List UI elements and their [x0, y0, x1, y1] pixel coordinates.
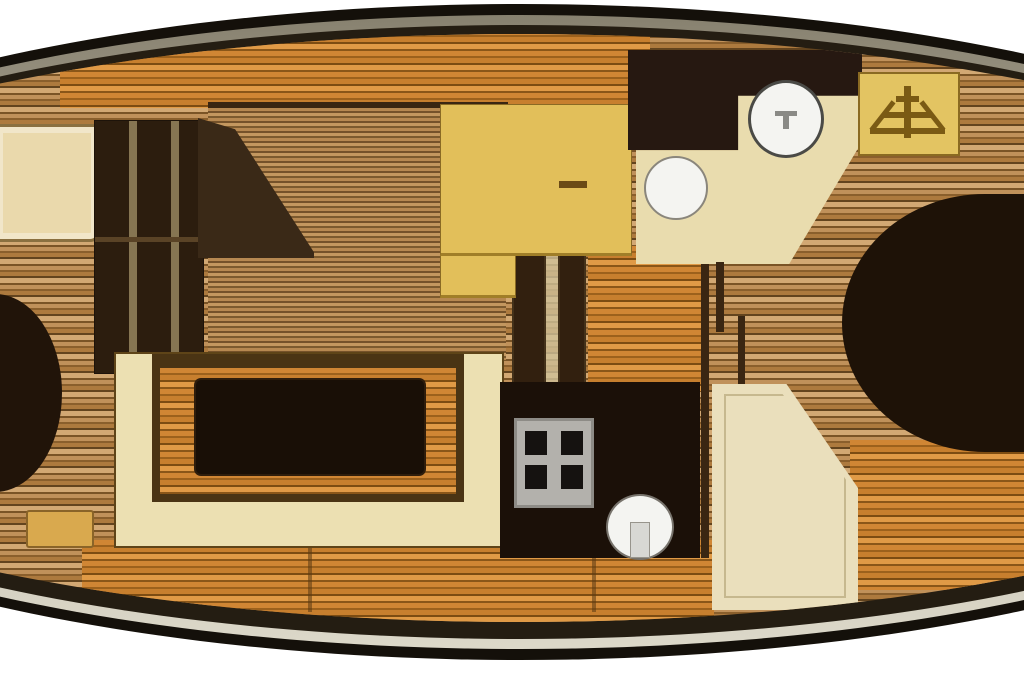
- side-step: [26, 510, 94, 548]
- counter-handle: [559, 181, 587, 188]
- partition-post-gap: [546, 246, 558, 390]
- saloon-settee: [114, 352, 504, 548]
- partition-post-left: [512, 246, 546, 390]
- forward-cabinet: [0, 124, 100, 242]
- wardrobe: [94, 120, 204, 374]
- galley-counter: [440, 104, 632, 256]
- galley-faucet: [630, 522, 650, 558]
- companionway-panel: [858, 72, 960, 156]
- head-washbasin: [644, 156, 708, 220]
- toilet-hinge-mark: [783, 111, 789, 129]
- galley-unit: [500, 382, 700, 558]
- boat-floorplan: [0, 0, 1024, 680]
- steps-tread: [870, 128, 945, 134]
- floor-aft-cabin: [850, 440, 1024, 590]
- toilet: [748, 80, 824, 158]
- wall-aft-door: [738, 316, 745, 388]
- stove-burner: [561, 431, 583, 455]
- wall-galley-right: [701, 248, 709, 558]
- galley-sink: [606, 494, 674, 560]
- settee-well-floor: [152, 354, 464, 502]
- wall-head-bottom: [716, 262, 724, 332]
- galley-stove: [514, 418, 594, 508]
- saloon-table: [196, 380, 424, 474]
- stove-burner: [525, 431, 547, 455]
- floor-mid-passage: [588, 246, 704, 392]
- stove-burner: [525, 465, 547, 489]
- partition-post-right: [558, 246, 586, 390]
- shower-compartment: [628, 50, 740, 150]
- stove-burner: [561, 465, 583, 489]
- floor-seam-left: [308, 540, 312, 612]
- steps-tread: [896, 96, 919, 102]
- hull-interior: [0, 0, 1024, 680]
- wardrobe-shelf-line: [95, 237, 203, 242]
- steps-tread: [884, 112, 931, 118]
